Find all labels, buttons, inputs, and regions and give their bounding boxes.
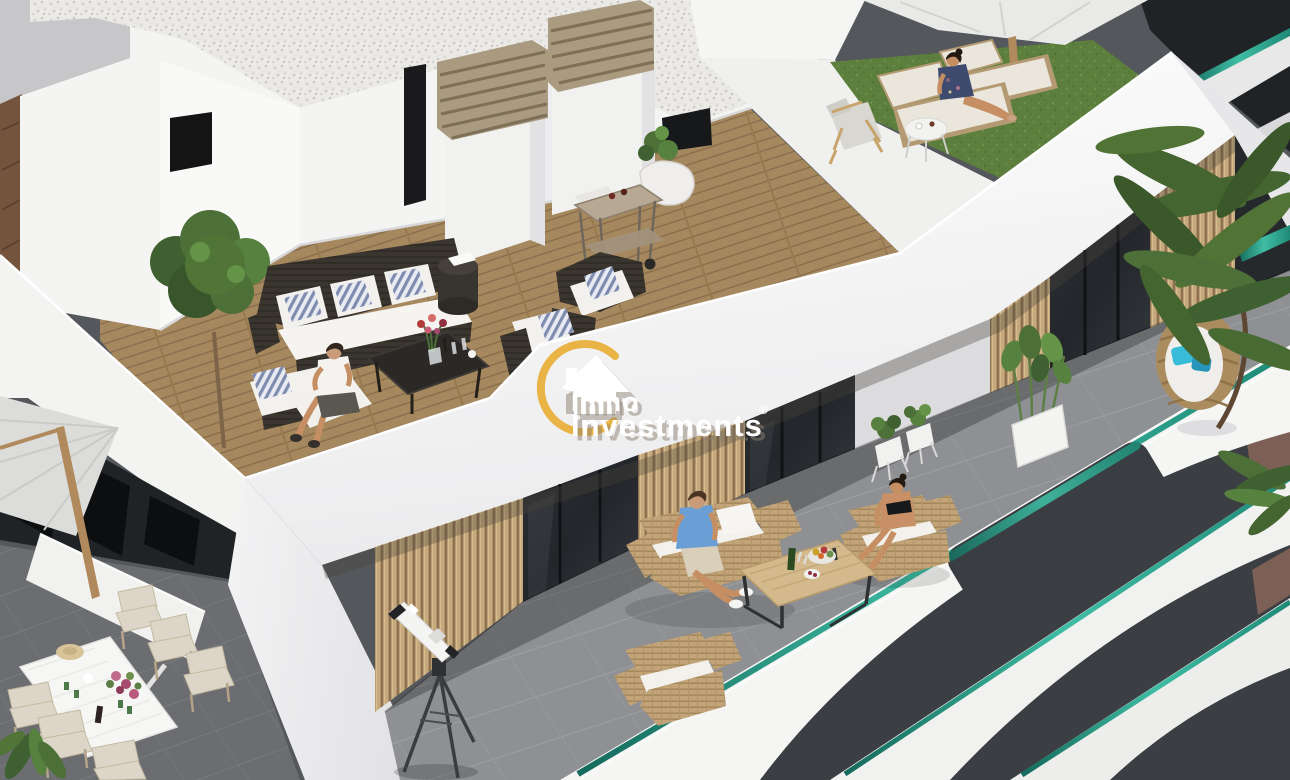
building-render: Inmo Inmo Investments Investments ® [0, 0, 1290, 780]
louvre-box [437, 40, 548, 268]
louvre-box [548, 0, 655, 215]
vase [428, 347, 442, 365]
coffee-cup [468, 350, 476, 358]
mug [104, 722, 113, 731]
side-table [438, 252, 478, 315]
registered-mark: ® [759, 403, 769, 417]
render-image: Inmo Inmo Investments Investments ® [0, 0, 1290, 780]
watermark-line2: Investments [571, 408, 763, 443]
doorway-opening [404, 64, 426, 206]
doorway-opening [170, 112, 212, 172]
